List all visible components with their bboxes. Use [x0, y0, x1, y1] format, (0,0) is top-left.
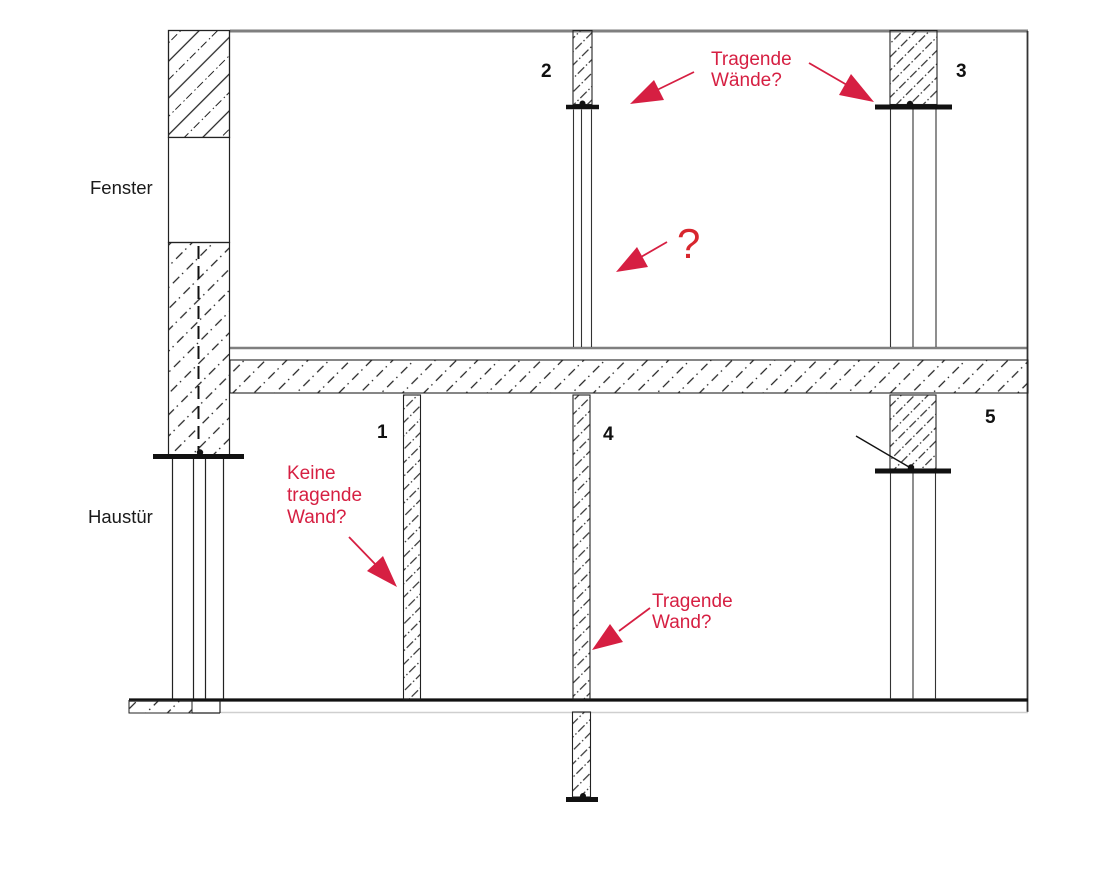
wall-3-hatch	[890, 31, 937, 105]
arrow-to-wall-1-shaft	[349, 537, 376, 565]
wall-4-footing-dot	[580, 793, 586, 799]
arrow-to-wall-2-shaft	[657, 72, 694, 90]
wall-5-hatch	[890, 395, 936, 469]
no-load-bearing-label-line3: Wand?	[287, 507, 347, 528]
floor-plan-diagram: Fenster Haustür 1 2 3 4 5 Tragende Wände…	[0, 0, 1116, 877]
load-bearing-walls-label-line2: Wände?	[711, 70, 782, 91]
ground-hatch-strip	[129, 701, 192, 714]
load-bearing-wall-label-line1: Tragende	[652, 591, 733, 612]
arrow-question-shaft	[641, 242, 667, 257]
wall-1-hatch	[404, 395, 421, 699]
slab-band-hatch	[230, 360, 1028, 393]
floor-plan-page: Fenster Haustür 1 2 3 4 5 Tragende Wände…	[0, 0, 1116, 877]
wall-5-number: 5	[985, 407, 996, 428]
wall-1-number: 1	[377, 422, 388, 443]
no-load-bearing-label-line1: Keine	[287, 463, 336, 484]
arrow-to-wall-3-shaft	[809, 63, 847, 85]
wall-4-basement-hatch	[573, 712, 591, 797]
wall-4-hatch	[573, 395, 590, 699]
wall-4-number: 4	[603, 424, 614, 445]
arrow-question-head	[616, 247, 648, 272]
left-wall-upper-hatch	[169, 31, 230, 138]
no-load-bearing-label-line2: tragende	[287, 485, 362, 506]
load-bearing-wall-label-line2: Wand?	[652, 612, 712, 633]
wall-3-number: 3	[956, 61, 967, 82]
window-opening	[169, 138, 230, 243]
window-label: Fenster	[90, 177, 153, 198]
wall-2-number: 2	[541, 61, 552, 82]
arrow-to-wall-4-head	[592, 624, 623, 650]
wall-3-dot	[907, 101, 913, 107]
arrow-to-wall-2-head	[630, 80, 664, 104]
front-door-label: Haustür	[88, 506, 153, 527]
door-lintel-dot	[197, 449, 203, 455]
arrow-to-wall-4-shaft	[619, 608, 650, 631]
question-mark-label: ?	[677, 220, 700, 267]
arrow-to-wall-3-head	[839, 74, 874, 102]
wall-5-dot	[908, 464, 914, 470]
load-bearing-walls-label-line1: Tragende	[711, 49, 792, 70]
wall-2-hatch	[573, 31, 592, 105]
wall-2-dot	[580, 101, 586, 107]
